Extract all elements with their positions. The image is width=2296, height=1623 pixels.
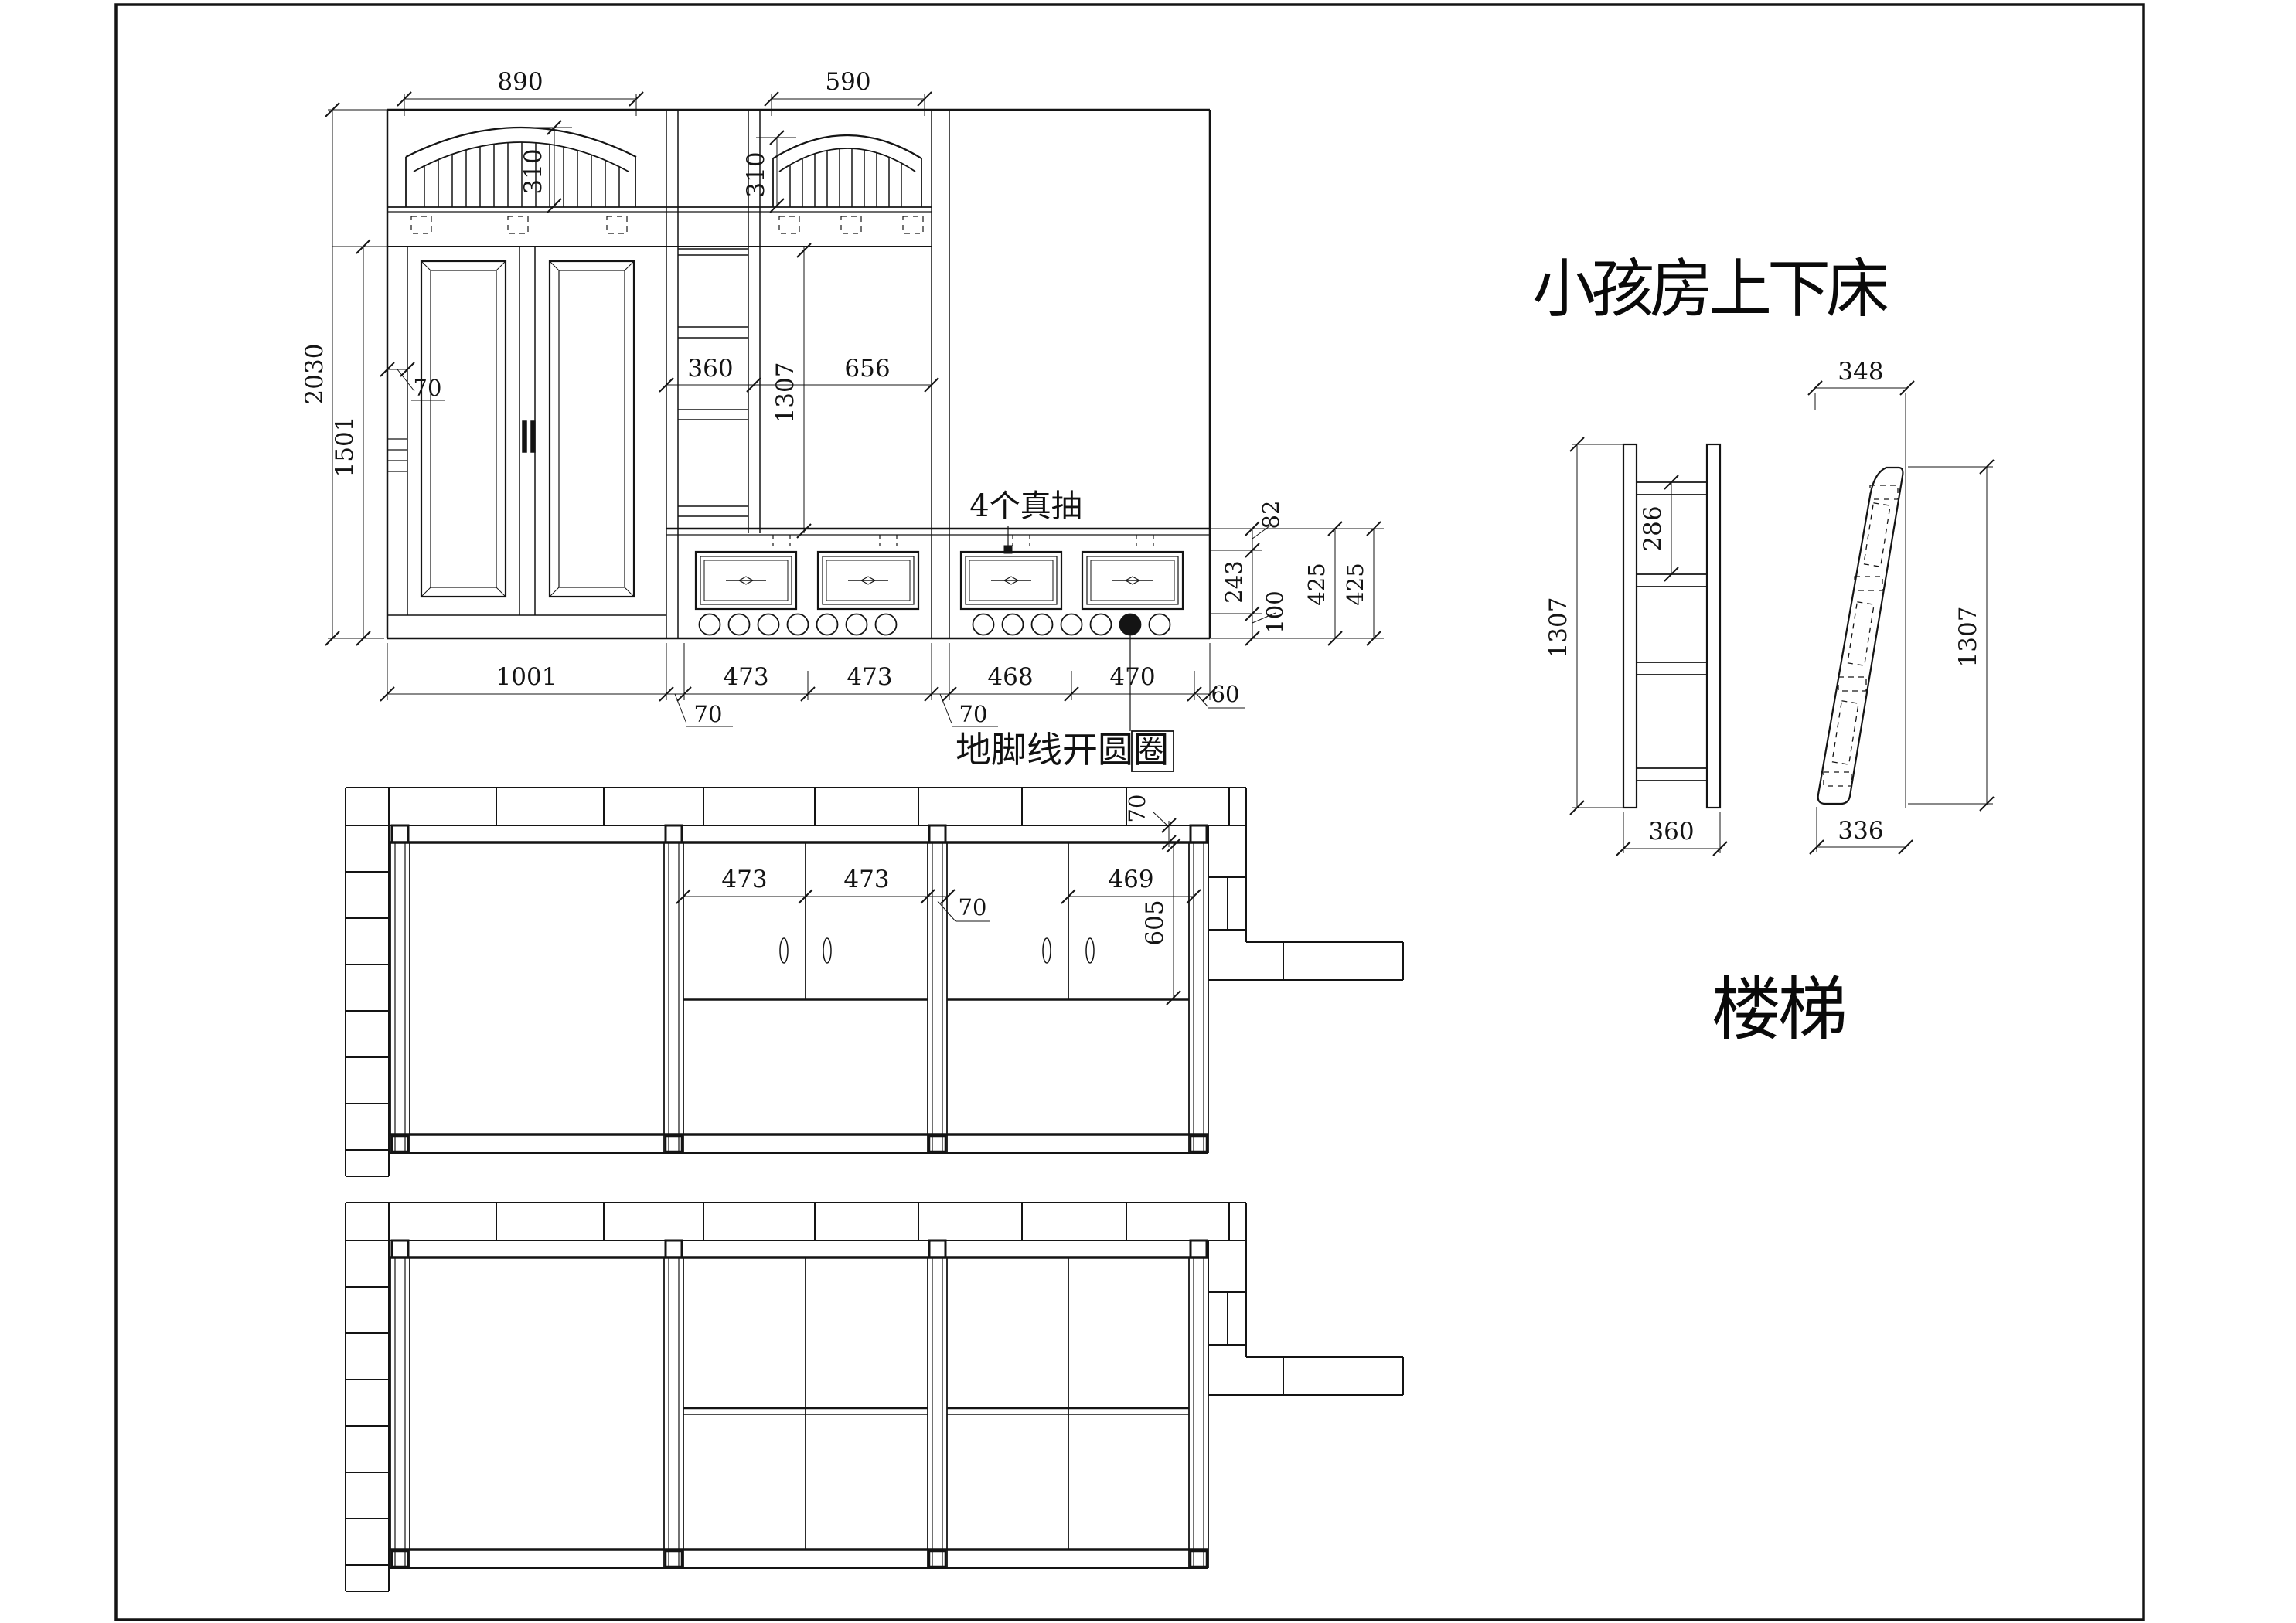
dim-2030: 2030	[301, 344, 329, 405]
post-cap	[666, 1240, 682, 1257]
skirting-circle	[847, 614, 867, 635]
cad-line	[625, 261, 634, 270]
rung-mortise	[1838, 677, 1866, 691]
plan-dim-473-b: 473	[843, 866, 889, 893]
dim-890: 890	[497, 68, 543, 96]
post-cap	[929, 825, 945, 842]
cad-line	[550, 261, 559, 270]
cad-line	[550, 587, 559, 597]
ladder-stringer	[1818, 468, 1903, 804]
arch-inner-mid	[779, 148, 915, 172]
cad-sheet: 小孩房上下床 楼梯 890 590 310 310 2030 1501 70 3…	[0, 0, 2296, 1623]
plan-handle	[1043, 938, 1051, 963]
dim-82: 82	[1258, 501, 1284, 529]
ladder-dim-1307-side: 1307	[1954, 607, 1982, 668]
plan-dim-473-a: 473	[721, 866, 767, 893]
door-panel	[421, 261, 506, 597]
dim-425-a: 425	[1303, 563, 1330, 605]
post-foot	[1191, 1136, 1207, 1152]
dentil-block	[903, 216, 923, 233]
post-foot	[392, 1136, 408, 1152]
ladder-dim-286: 286	[1639, 505, 1667, 551]
cad-drawing-svg: 小孩房上下床 楼梯 890 590 310 310 2030 1501 70 3…	[0, 0, 2296, 1623]
dentil-block	[411, 216, 431, 233]
dim-70-b: 70	[959, 701, 988, 727]
dim-243: 243	[1221, 560, 1247, 603]
dentil-block	[841, 216, 861, 233]
door-panel	[431, 270, 496, 587]
plan-dim-70: 70	[959, 894, 987, 920]
post-cap	[666, 825, 682, 842]
skirting-circle	[1150, 614, 1170, 635]
plan-dim-469: 469	[1108, 866, 1153, 893]
drawing-title: 小孩房上下床	[1532, 253, 1888, 326]
cad-line	[421, 587, 431, 597]
skirting-circle	[758, 614, 779, 635]
rung-mortise	[1824, 772, 1851, 786]
cad-line	[496, 587, 506, 597]
skirting-circle	[1091, 614, 1112, 635]
door-panel	[559, 270, 625, 587]
plan-view-upper	[346, 788, 1403, 1176]
dim-473-b: 473	[847, 663, 892, 691]
ladder-views	[1570, 381, 1994, 856]
cad-line	[625, 587, 634, 597]
skirting-circle	[788, 614, 809, 635]
ladder-dim-1307-front: 1307	[1545, 597, 1572, 658]
cad-line	[397, 369, 414, 391]
arch-outer-mid	[773, 135, 921, 158]
skirting-circle	[700, 614, 720, 635]
post-foot	[1191, 1551, 1207, 1567]
post-cap	[1191, 825, 1207, 842]
post-foot	[666, 1136, 682, 1152]
dim-310-left: 310	[519, 148, 547, 194]
rung-mortise-long	[1848, 602, 1874, 665]
dentil-block	[779, 216, 799, 233]
post-cap	[1191, 1240, 1207, 1257]
door-panel	[550, 261, 634, 597]
post-cap	[929, 1240, 945, 1257]
post-cap	[392, 1240, 408, 1257]
rung-mortise	[1870, 485, 1898, 499]
dim-470: 470	[1109, 663, 1155, 691]
dentil-block	[508, 216, 528, 233]
dim-1307-cab: 1307	[772, 362, 799, 424]
ladder-label: 楼梯	[1712, 969, 1845, 1050]
dim-656: 656	[844, 355, 890, 383]
ladder-dim-360: 360	[1648, 818, 1694, 846]
dim-360: 360	[687, 355, 733, 383]
dim-70-stile: 70	[414, 375, 442, 401]
skirting-circle	[1003, 614, 1024, 635]
text-layer: 小孩房上下床 楼梯 890 590 310 310 2030 1501 70 3…	[301, 68, 1982, 1050]
skirting-circle	[729, 614, 750, 635]
skirting-circle	[1032, 614, 1053, 635]
door-handle	[531, 421, 535, 452]
note-skirting: 地脚线开圆圈	[956, 729, 1169, 771]
dim-60: 60	[1211, 681, 1240, 707]
dim-100: 100	[1262, 590, 1288, 633]
rung-mortise-long	[1832, 701, 1858, 764]
post-cap	[392, 825, 408, 842]
door-handle	[523, 421, 526, 452]
post-foot	[929, 1551, 945, 1567]
plan-dim-605: 605	[1141, 900, 1169, 945]
skirting-circle	[973, 614, 994, 635]
dim-473-a: 473	[723, 663, 768, 691]
post-foot	[666, 1551, 682, 1567]
ladder-stile	[1707, 444, 1720, 808]
post-foot	[929, 1136, 945, 1152]
skirting-circle	[1061, 614, 1082, 635]
cad-line	[421, 261, 431, 270]
dim-1501: 1501	[331, 417, 359, 478]
dim-1001: 1001	[496, 663, 557, 691]
plan-handle	[780, 938, 788, 963]
skirting-circle	[1120, 614, 1141, 635]
dim-70-a: 70	[694, 701, 723, 727]
leader-dot	[1004, 546, 1012, 553]
skirting-circle	[876, 614, 897, 635]
dim-590: 590	[825, 68, 870, 96]
ladder-stile	[1623, 444, 1637, 808]
rung-mortise	[1855, 577, 1882, 590]
cad-line	[1197, 694, 1208, 706]
plan-handle	[823, 938, 831, 963]
ladder-dim-336: 336	[1838, 817, 1883, 845]
plan-handle	[1086, 938, 1094, 963]
plan-view-lower	[346, 1203, 1403, 1591]
dim-468: 468	[987, 663, 1033, 691]
ladder-dim-348: 348	[1838, 358, 1883, 386]
plan-dim-70-wall: 70	[1124, 794, 1150, 823]
dentil-block	[607, 216, 627, 233]
post-foot	[392, 1551, 408, 1567]
dim-310-mid: 310	[742, 151, 770, 197]
cad-line	[496, 261, 506, 270]
note-drawers: 4个真抽	[969, 488, 1082, 524]
skirting-circle	[817, 614, 838, 635]
dim-425-b: 425	[1342, 563, 1368, 605]
